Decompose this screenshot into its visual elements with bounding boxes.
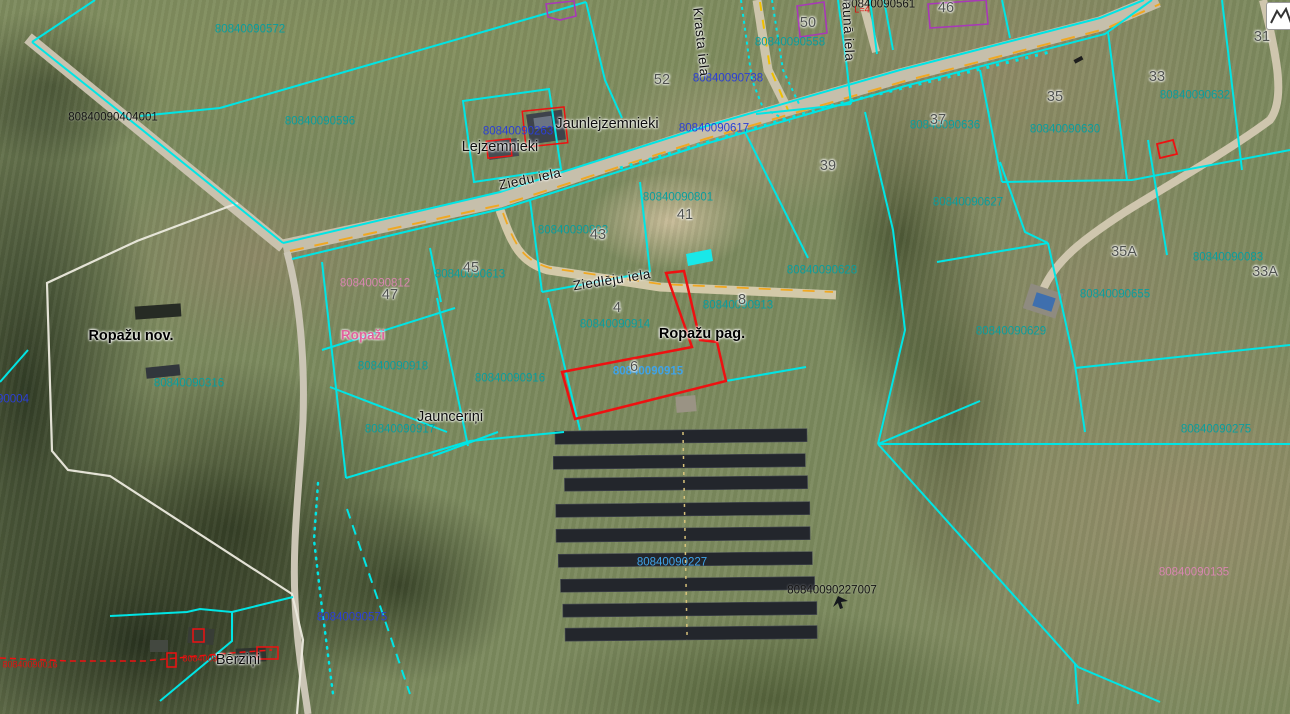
parcel-number-80840090227007: 80840090227007 xyxy=(787,585,877,597)
address-number-35: 35 xyxy=(1047,90,1063,105)
address-number-33a: 33A xyxy=(1252,265,1278,280)
parcel-number-80840090918: 80840090918 xyxy=(358,361,428,373)
parcel-number-80840090629: 80840090629 xyxy=(976,326,1046,338)
map-tool-button[interactable] xyxy=(1266,2,1290,30)
red-number-left: 80840090016 xyxy=(2,661,57,670)
parcel-number-80840090404001: 80840090404001 xyxy=(68,112,158,124)
parcel-number-80840090316: 80840090316 xyxy=(154,378,224,390)
labels-layer: 8084009057280840090596808400905588084009… xyxy=(0,0,1290,714)
place-name-jauncerini: Jaunceriņi xyxy=(417,410,483,425)
parcel-number-80840090627: 80840090627 xyxy=(933,197,1003,209)
address-number-45: 45 xyxy=(463,261,479,276)
address-number-31: 31 xyxy=(1254,30,1270,45)
parcel-number-80840090083: 80840090083 xyxy=(1193,252,1263,264)
address-number-4: 4 xyxy=(613,301,621,316)
parcel-number-80840090558: 80840090558 xyxy=(755,37,825,49)
building-number-80840090575: 80840090575 xyxy=(317,612,387,624)
address-number-35a: 35A xyxy=(1111,245,1137,260)
parcel-number-80840090915: 80840090915 xyxy=(613,366,683,378)
parcel-number-80840090630: 80840090630 xyxy=(1030,124,1100,136)
cadastral-map-view[interactable]: 8084009057280840090596808400905588084009… xyxy=(0,0,1290,714)
red-measure-label: L=4 xyxy=(854,6,869,15)
address-number-50: 50 xyxy=(800,16,816,31)
road-name-krasta-iela: Krasta iela xyxy=(691,7,712,77)
parcel-number-80840090801: 80840090801 xyxy=(643,192,713,204)
parcel-number-80840090632: 80840090632 xyxy=(1160,90,1230,102)
parcel-number-80840090916: 80840090916 xyxy=(475,373,545,385)
zoning-number-80840090812: 80840090812 xyxy=(340,278,410,290)
parcel-number-80840090655: 80840090655 xyxy=(1080,289,1150,301)
place-name-ropazi: Ropaži xyxy=(341,328,385,342)
place-name-jaunlejzemnieki: Jaunlejzemnieki xyxy=(555,117,658,132)
red-number-fragment: 8084009 xyxy=(182,655,217,664)
address-number-52: 52 xyxy=(654,73,670,88)
road-name-ziedleju-iela: Ziedlēju iela xyxy=(572,267,652,293)
parcel-number-80840090628: 80840090628 xyxy=(787,265,857,277)
address-number-43: 43 xyxy=(590,228,606,243)
mountain-zigzag-icon xyxy=(1270,7,1290,25)
building-number-80840090263: 80840090263 xyxy=(483,126,553,138)
place-name-berzini: Bērziņi xyxy=(216,653,260,668)
parcel-number-80840090275: 80840090275 xyxy=(1181,424,1251,436)
parcel-number-80840090914: 80840090914 xyxy=(580,319,650,331)
building-number-80840090617: 80840090617 xyxy=(679,123,749,135)
address-number-6: 6 xyxy=(630,360,638,375)
address-number-8: 8 xyxy=(738,293,746,308)
address-number-47: 47 xyxy=(382,288,398,303)
address-number-46: 46 xyxy=(938,1,954,16)
address-number-33: 33 xyxy=(1149,70,1165,85)
address-number-39: 39 xyxy=(820,159,836,174)
parcel-number-80840090572: 80840090572 xyxy=(215,24,285,36)
road-name-ziedu-iela: Ziedu iela xyxy=(498,166,563,192)
zoning-number-80840090135: 80840090135 xyxy=(1159,567,1229,579)
address-number-41: 41 xyxy=(677,208,693,223)
municipality-name-ropazu-nov: Ropažu nov. xyxy=(88,329,173,344)
place-name-lejzemnieki: Lejzemnieki xyxy=(462,140,539,155)
parcel-number-80840090227: 80840090227 xyxy=(637,557,707,569)
parcel-number-80840090917: 80840090917 xyxy=(365,424,435,436)
building-number-90004: 90004 xyxy=(0,394,29,406)
parish-name-ropazu-pag: Ropažu pag. xyxy=(659,327,745,342)
parcel-number-80840090596: 80840090596 xyxy=(285,116,355,128)
address-number-37: 37 xyxy=(930,113,946,128)
